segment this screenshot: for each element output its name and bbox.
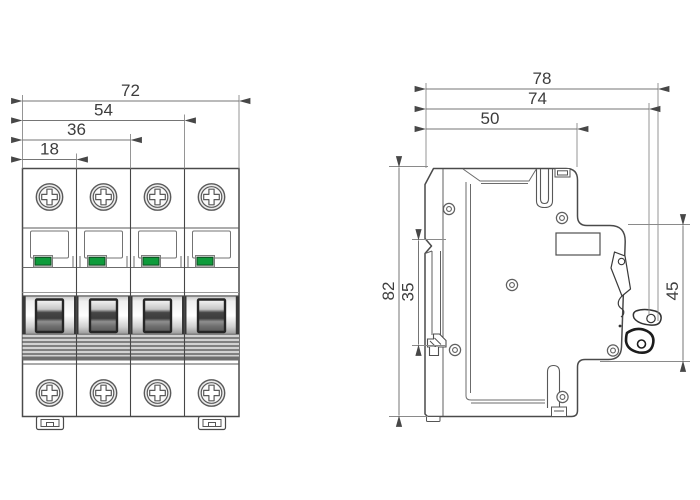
dimension-78: 78 [426,69,658,89]
terminal-block [556,233,600,255]
toggle-handle[interactable] [144,300,171,333]
screw-icon [36,380,62,406]
dimension-36-label: 36 [67,120,86,139]
rivet-icon [556,212,567,223]
din-clip-tab[interactable] [199,417,226,430]
lever-pivot-hole [647,314,655,322]
screw-icon [36,184,62,210]
top-latch [555,169,570,178]
dimension-45: 45 [663,226,683,361]
status-indicator-window [88,256,107,268]
side-view [425,169,661,422]
technical-drawing-canvas: 72 54 36 18 [0,0,700,500]
screw-icon [198,184,224,210]
dimension-50: 50 [426,109,577,129]
lever-arm-hole [618,258,624,264]
lever-knob-hole [638,340,646,348]
rivet-icon [607,345,618,356]
dimension-50-label: 50 [481,109,500,128]
dimension-74: 74 [426,89,649,109]
front-view [23,169,240,430]
dimension-45-label: 45 [663,282,682,301]
dimension-82-label: 82 [379,282,398,301]
mcb-dimension-drawing: 72 54 36 18 [0,0,700,500]
din-clip-tab[interactable] [37,417,64,430]
status-indicator-window [34,256,53,268]
dimension-54: 54 [23,101,185,121]
dimension-72: 72 [23,81,240,101]
dimension-35: 35 [399,241,419,345]
bottom-rear-foot [427,417,441,422]
dimension-82: 82 [379,168,399,416]
rivet-icon [443,203,454,214]
dimension-18: 18 [23,140,77,160]
front-view-dimensions: 72 54 36 18 [23,81,240,169]
dimension-36: 36 [23,120,131,140]
screw-icon [198,380,224,406]
bottom-front-latch [552,407,567,417]
dimension-74-label: 74 [528,89,547,108]
screw-icon [144,184,170,210]
dimension-54-label: 54 [94,101,113,120]
rivet-icon [449,344,460,355]
dimension-72-label: 72 [121,81,140,100]
dimension-78-label: 78 [533,69,552,88]
screw-icon [90,380,116,406]
screw-icon [144,380,170,406]
pivot-dot [619,325,622,328]
toggle-handle[interactable] [90,300,117,333]
status-indicator-window [142,256,161,268]
dimension-35-label: 35 [399,283,418,302]
screw-icon [90,184,116,210]
rivet-icon [506,279,517,290]
toggle-handle[interactable] [36,300,63,333]
dimension-18-label: 18 [40,140,59,159]
status-indicator-window [196,256,215,268]
rivet-icon [557,391,568,402]
breaker-side-body [425,169,625,417]
toggle-handle[interactable] [198,300,225,333]
